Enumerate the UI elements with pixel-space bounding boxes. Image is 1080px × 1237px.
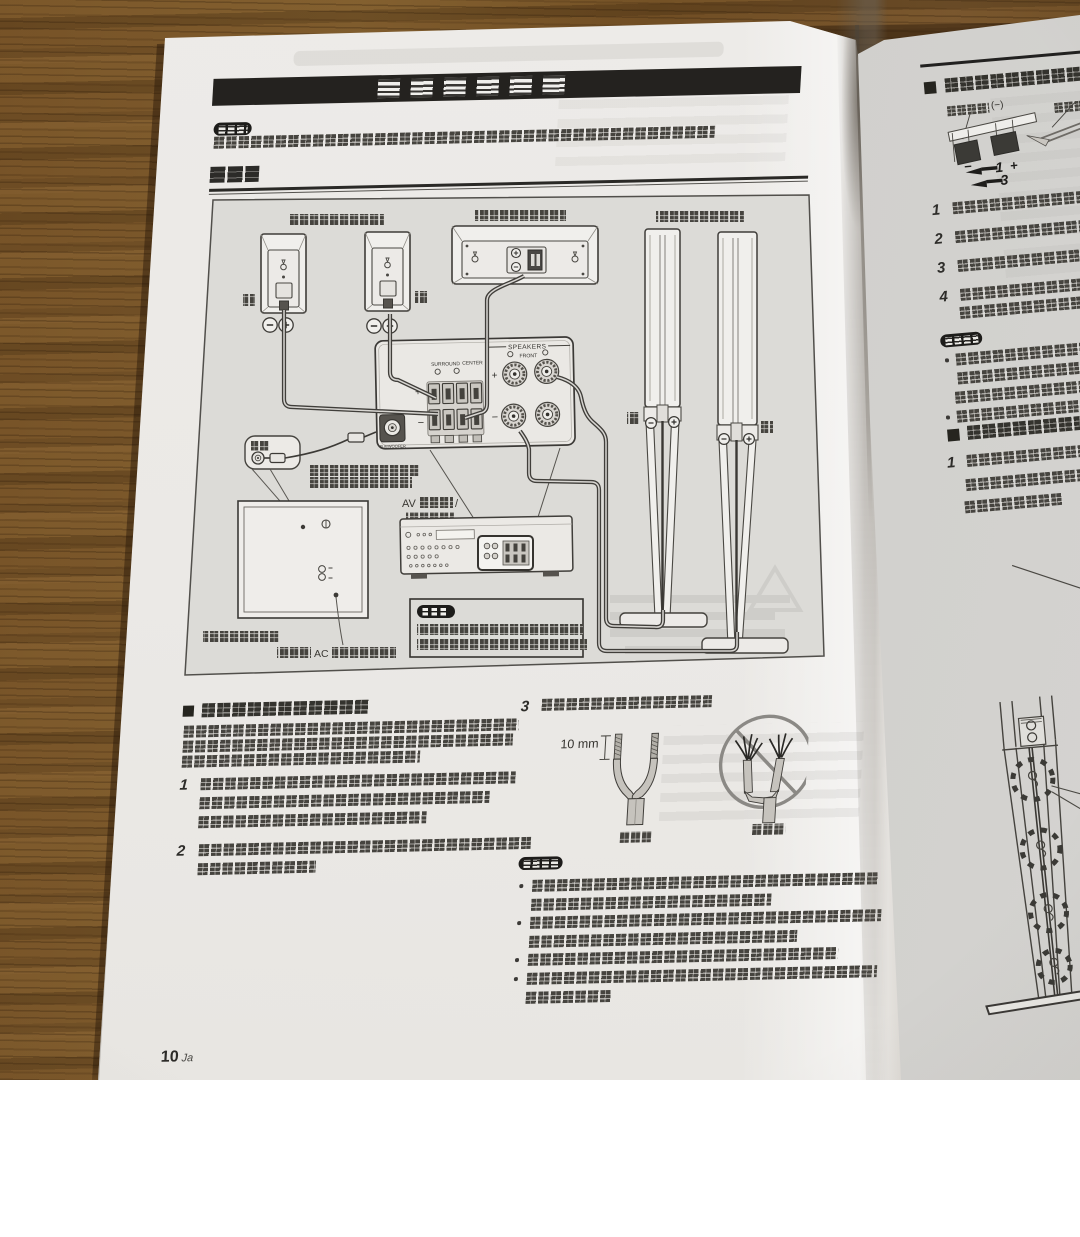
svg-text:FRONT: FRONT <box>519 353 538 359</box>
svg-text:CENTER: CENTER <box>462 360 483 366</box>
svg-text:−: − <box>492 411 499 423</box>
svg-text:+: + <box>492 370 498 381</box>
svg-text:−: − <box>418 417 425 429</box>
svg-text:SURROUND: SURROUND <box>431 361 460 368</box>
svg-text:AC: AC <box>314 648 329 660</box>
svg-text:SUBWOOFER: SUBWOOFER <box>380 443 406 449</box>
svg-text:10 mm: 10 mm <box>560 737 599 752</box>
svg-text:AV: AV <box>402 498 417 510</box>
svg-text:SPEAKERS: SPEAKERS <box>508 343 547 351</box>
